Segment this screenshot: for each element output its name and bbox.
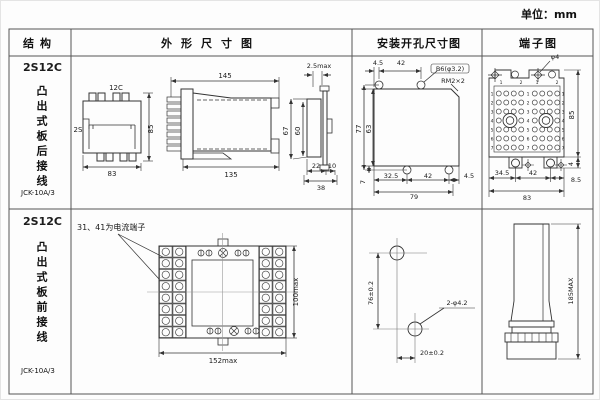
r1-front-dims (83, 93, 153, 171)
svg-text:6: 6 (491, 137, 494, 143)
r1-terminal-total: 83 (523, 194, 531, 202)
r1-mounting-bottom-d2: 42 (424, 172, 432, 180)
r1-mounting-top-d2: 42 (397, 59, 405, 67)
svg-text:5: 5 (562, 128, 565, 134)
svg-text:7: 7 (562, 146, 565, 152)
svg-text:4: 4 (562, 119, 565, 125)
r1-terminal-d1: 34.5 (495, 169, 509, 177)
r2-mounting-v-dim: 76±0.2 (367, 281, 375, 305)
svg-text:2: 2 (562, 101, 565, 107)
r1-side-bottom-dim: 135 (224, 171, 237, 179)
r2-mounting-h-dim: 20±0.2 (420, 349, 444, 357)
r1-mounting-hole-label: B6(φ3.2) (436, 65, 464, 73)
r1-front-top-label: 12C (109, 84, 123, 92)
svg-text:2: 2 (527, 101, 530, 107)
svg-text:6: 6 (527, 137, 530, 143)
r1-mounting-top-d1: 4.5 (373, 59, 383, 67)
r1-front-height: 85 (147, 125, 155, 134)
r1-mounting-inner-h: 63 (365, 125, 373, 134)
r1-profile-d1: 22 (312, 162, 320, 170)
r1-mounting-bottom-offset: 7 (359, 180, 367, 184)
r1-terminal-d2: 42 (529, 169, 537, 177)
r1-terminal-offset: 4 (567, 162, 575, 166)
r2-terminal-height: 185MAX (567, 277, 575, 304)
svg-text:5: 5 (527, 128, 530, 134)
r1-side-dims (171, 77, 279, 171)
svg-text:7: 7 (527, 146, 530, 152)
r1-front-left-label: 2S (74, 126, 83, 134)
svg-text:3: 3 (562, 110, 565, 116)
svg-text:1: 1 (500, 80, 503, 86)
r1-side-view (167, 77, 279, 171)
r1-terminal-tabs (509, 157, 567, 171)
r1-profile-total: 38 (317, 184, 325, 192)
r1-mounting-corner-label: RM2×2 (441, 77, 465, 85)
r1-profile-inner-h: 60 (294, 127, 302, 136)
svg-text:6: 6 (562, 137, 565, 143)
svg-text:5: 5 (491, 128, 494, 134)
svg-text:2: 2 (491, 101, 494, 107)
svg-text:7: 7 (491, 146, 494, 152)
r1-profile-thickness: 2.5max (307, 62, 332, 70)
r1-mounting-bottom-d1: 32.5 (384, 172, 398, 180)
r2-front-view (118, 233, 298, 357)
svg-text:1: 1 (536, 80, 539, 86)
technical-drawing-canvas: 12C 2S 85 83 145 135 (1, 1, 600, 400)
r1-terminal-height: 85 (568, 111, 576, 120)
r1-mounting-bottom-d3: 4.5 (464, 172, 474, 180)
svg-text:1: 1 (527, 92, 530, 98)
r1-terminal-d3: 8.5 (571, 176, 581, 184)
r1-terminal-hole-label: φ4 (551, 53, 559, 61)
r1-mounting-bottom-total: 79 (410, 193, 418, 201)
r1-mounting-left-h: 77 (355, 125, 363, 134)
svg-text:3: 3 (491, 110, 494, 116)
r2-front-height: 100max (292, 278, 300, 307)
drawing-sheet: 单位：mm 结构 外形尺寸图 安装开孔尺寸图 端子图 2S12C 凸出式板后接线… (0, 0, 600, 400)
svg-text:1: 1 (562, 92, 565, 98)
svg-text:3: 3 (527, 110, 530, 116)
r2-mounting-hole-label: 2-φ4.2 (446, 299, 467, 307)
r1-side-top-dim: 145 (218, 72, 231, 80)
svg-text:2: 2 (520, 80, 523, 86)
svg-text:4: 4 (527, 119, 530, 125)
r2-terminal-dims (551, 224, 581, 359)
svg-text:1: 1 (491, 92, 494, 98)
r1-front-width: 83 (108, 170, 117, 178)
r2-front-width: 152max (209, 357, 238, 365)
svg-text:4: 4 (491, 119, 494, 125)
r1-profile-outer-h: 67 (282, 127, 290, 136)
r1-front-view (83, 93, 153, 171)
r1-profile-d2: 10 (328, 162, 336, 170)
svg-text:2: 2 (556, 80, 559, 86)
